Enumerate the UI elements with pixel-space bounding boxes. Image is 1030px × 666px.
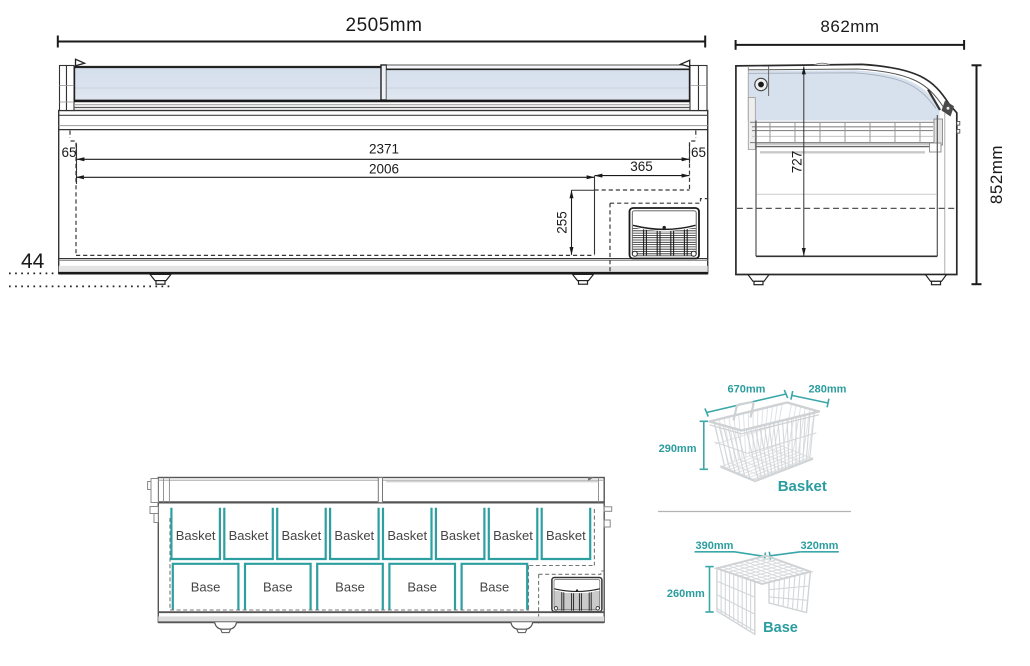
svg-text:320mm: 320mm	[801, 540, 839, 552]
svg-text:852mm: 852mm	[987, 145, 1006, 204]
svg-text:Base: Base	[763, 620, 798, 636]
svg-text:390mm: 390mm	[696, 540, 734, 552]
svg-text:Basket: Basket	[387, 528, 427, 543]
svg-text:255: 255	[555, 211, 570, 234]
svg-text:Basket: Basket	[778, 478, 827, 495]
svg-text:44: 44	[21, 250, 45, 273]
svg-text:Basket: Basket	[282, 528, 322, 543]
svg-text:Basket: Basket	[334, 528, 374, 543]
svg-text:Base: Base	[480, 580, 510, 595]
svg-text:862mm: 862mm	[820, 17, 879, 36]
svg-text:Basket: Basket	[440, 528, 480, 543]
svg-text:Basket: Basket	[176, 528, 216, 543]
svg-text:Base: Base	[263, 580, 293, 595]
svg-text:65: 65	[691, 145, 706, 160]
svg-text:280mm: 280mm	[809, 383, 847, 395]
svg-text:65: 65	[62, 145, 77, 160]
svg-text:Basket: Basket	[493, 528, 533, 543]
svg-text:Basket: Basket	[229, 528, 269, 543]
svg-text:Base: Base	[407, 580, 437, 595]
svg-text:2371: 2371	[369, 142, 399, 157]
svg-text:2505mm: 2505mm	[346, 15, 423, 36]
svg-text:290mm: 290mm	[659, 443, 697, 455]
svg-text:365: 365	[630, 159, 653, 174]
svg-text:Base: Base	[335, 580, 365, 595]
svg-text:Base: Base	[191, 580, 221, 595]
svg-text:2006: 2006	[369, 162, 399, 177]
svg-text:Basket: Basket	[546, 528, 586, 543]
svg-text:727: 727	[790, 151, 805, 174]
svg-text:670mm: 670mm	[728, 383, 766, 395]
svg-text:260mm: 260mm	[667, 588, 705, 600]
